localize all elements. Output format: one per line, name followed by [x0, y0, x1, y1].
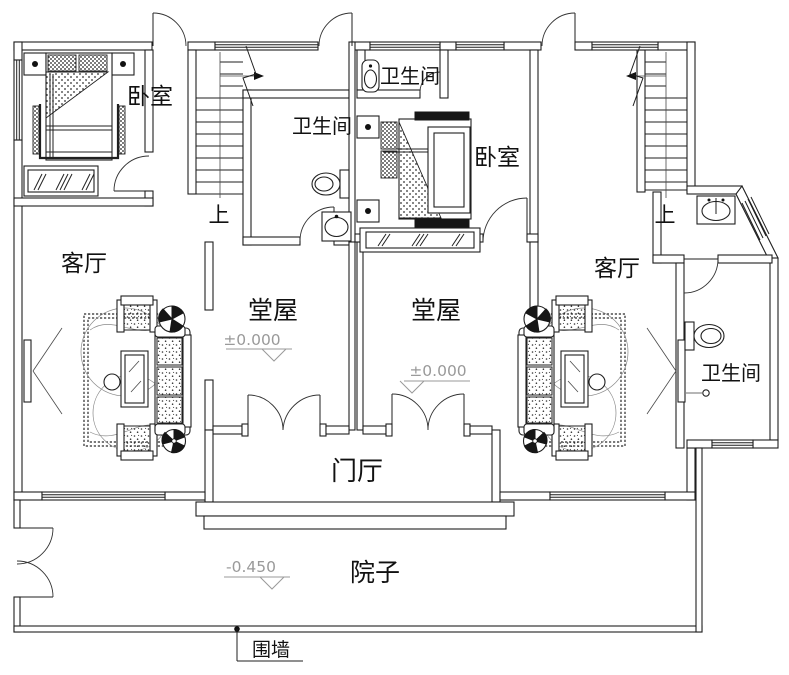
- elevation-value: -0.450: [226, 558, 276, 576]
- label-entry-hall: 门厅: [331, 456, 383, 486]
- label-living-right: 客厅: [594, 255, 640, 281]
- elevation-mark-hall-left: ±0.000: [223, 331, 292, 361]
- door-hall-right-double: [392, 394, 464, 430]
- sink-bay-icon: [697, 196, 735, 224]
- door-bathroom-right: [684, 259, 718, 293]
- door-back-right: [542, 13, 575, 46]
- window-bottom-left: [42, 492, 165, 500]
- stairs-right: [626, 46, 687, 198]
- label-bedroom-center: 卧室: [474, 144, 520, 170]
- bed-center: [357, 112, 471, 227]
- sofa-set-left: [24, 296, 191, 460]
- sofa-set-right: [518, 296, 685, 460]
- door-hall-left-double: [248, 395, 320, 430]
- door-back-left: [153, 13, 186, 46]
- wardrobe-center: [360, 228, 480, 252]
- label-bathroom-center-top: 卫生间: [380, 65, 440, 88]
- label-living-left: 客厅: [61, 250, 107, 276]
- elevation-value: ±0.000: [409, 362, 466, 380]
- dresser-left: [24, 166, 98, 196]
- stair-arrow-right: [626, 72, 636, 80]
- floor-plan-drawing: ±0.000 ±0.000 -0.450 卧室 卫生间 卫生间 卧室 上 上 客…: [0, 0, 789, 675]
- window-bay-bottom: [712, 440, 753, 448]
- elevation-mark-courtyard: -0.450: [224, 558, 290, 589]
- window-left-bedroom: [14, 60, 22, 140]
- bed-left: [24, 53, 134, 160]
- door-bedroom-left: [114, 156, 149, 191]
- window-top-2: [370, 42, 440, 50]
- door-bedroom-center: [483, 198, 527, 242]
- window-top-1: [215, 42, 318, 50]
- label-bathroom-center-left: 卫生间: [292, 115, 352, 138]
- label-hall-right: 堂屋: [411, 297, 461, 325]
- window-top-3: [456, 42, 504, 50]
- window-top-4: [592, 42, 658, 50]
- label-courtyard: 院子: [350, 559, 400, 587]
- label-stairs-up-right: 上: [655, 204, 676, 227]
- sink-top-icon: [362, 60, 379, 92]
- label-hall-left: 堂屋: [248, 297, 298, 325]
- toilet-right-icon: [685, 322, 724, 350]
- porch-steps: [196, 502, 514, 529]
- label-fence-wall: 围墙: [252, 639, 290, 661]
- elevation-value: ±0.000: [223, 331, 280, 349]
- stairs-left: [196, 46, 264, 198]
- elevation-mark-hall-right: ±0.000: [400, 362, 470, 393]
- toilet-left-icon: [312, 170, 349, 198]
- door-stop-icon: [686, 390, 709, 396]
- window-bottom-right: [550, 492, 665, 500]
- gate-courtyard-double: [17, 528, 53, 597]
- door-back-center: [319, 13, 352, 46]
- label-bathroom-right: 卫生间: [701, 362, 761, 385]
- floor-plan-page: ±0.000 ±0.000 -0.450 卧室 卫生间 卫生间 卧室 上 上 客…: [0, 0, 789, 675]
- label-stairs-up-left: 上: [209, 204, 230, 227]
- sink-left-icon: [322, 212, 351, 241]
- label-bedroom-left: 卧室: [127, 83, 173, 109]
